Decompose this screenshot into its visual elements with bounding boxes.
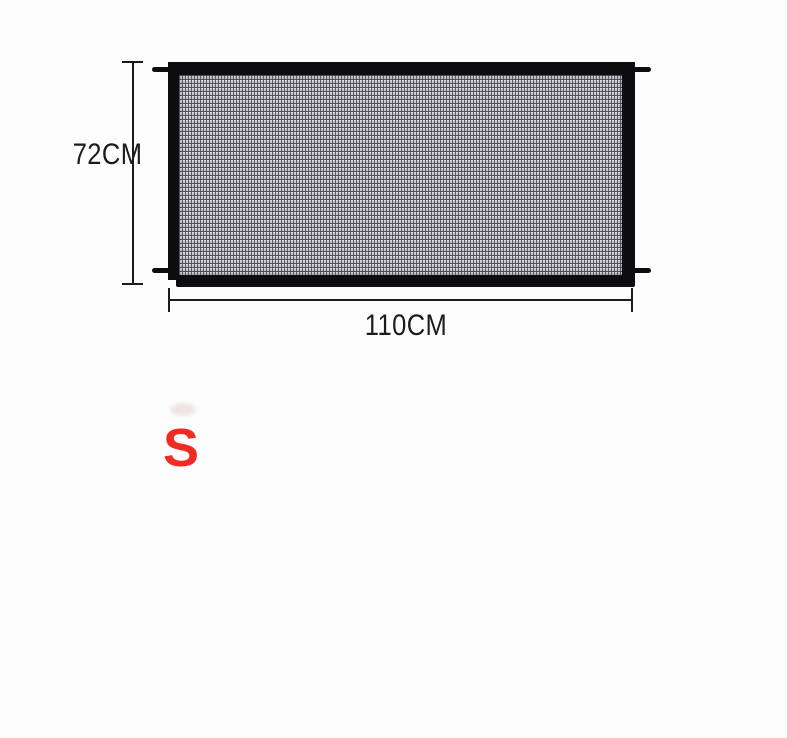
width-dimension-tick-right: [631, 288, 633, 312]
height-dimension-label: 72CM: [73, 140, 138, 170]
size-option-label: S: [163, 421, 199, 475]
width-dimension-label: 110CM: [355, 311, 457, 341]
print-smudge: [170, 403, 196, 416]
height-dimension-cap-bottom: [122, 283, 143, 285]
gate-frame-bottom: [176, 274, 635, 287]
gate-frame-top: [168, 62, 635, 75]
mount-strap-bottom-right: [634, 268, 651, 273]
gate-mesh-panel: [179, 75, 622, 275]
height-dimension-line: [132, 62, 134, 284]
mount-strap-top-right: [634, 67, 651, 72]
product-diagram: 72CM 110CM S: [0, 0, 787, 738]
mount-strap-top-left: [152, 67, 169, 72]
gate-frame-right: [622, 62, 635, 280]
mount-strap-bottom-left: [152, 268, 169, 273]
width-dimension-line: [168, 299, 633, 301]
gate-frame-left: [168, 62, 179, 280]
